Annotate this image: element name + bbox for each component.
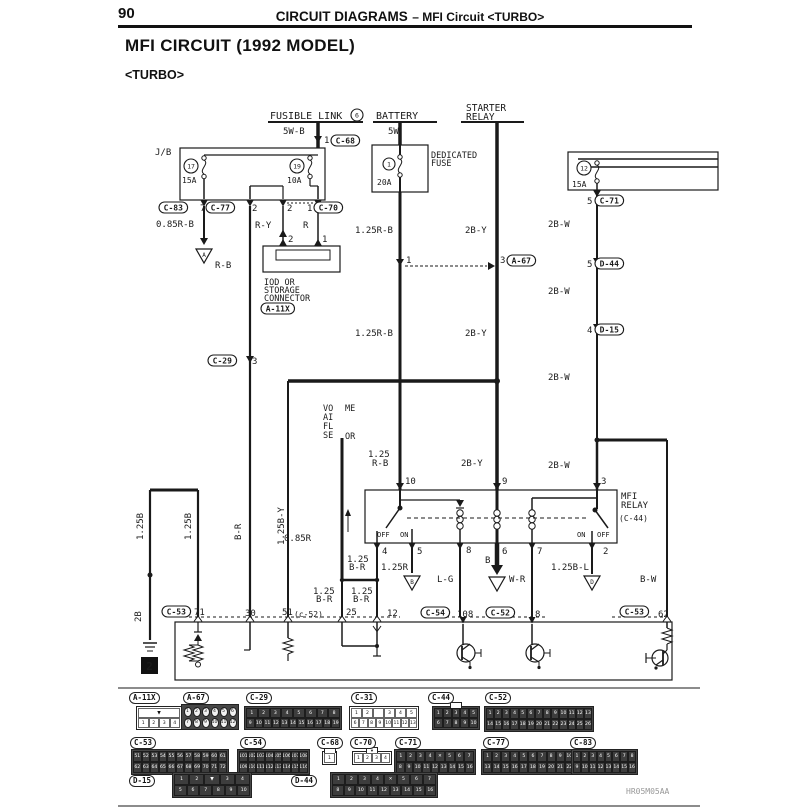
pin-cell: 2 <box>363 753 372 763</box>
pin-cell: 6 <box>434 718 443 728</box>
pin-cell: 1 <box>332 774 345 785</box>
pin-cell: 3 <box>416 751 426 762</box>
pin-cell: 5 <box>406 708 417 718</box>
pin-cell: 2 <box>492 751 501 762</box>
pin-cell: 11 <box>568 708 576 719</box>
pin-cell: 18 <box>528 762 537 773</box>
pin-cell: 1 <box>483 751 492 762</box>
pin-cell: 8 <box>368 718 376 728</box>
pin-cell: 3 <box>220 774 235 785</box>
pin-cell: 7 <box>443 718 452 728</box>
pin-cell: 6 <box>455 751 465 762</box>
pin-cell: 20 <box>535 719 543 730</box>
pin-cell: 16 <box>502 719 510 730</box>
connector-pinout-a-67: 123456789101112 <box>181 704 239 730</box>
pin-cell: 102 <box>248 751 257 762</box>
pin-cell: 4 <box>510 708 518 719</box>
connector-pinout-c-68: 1 <box>322 751 337 765</box>
pin-cell: 4 <box>371 774 384 785</box>
pin-cell: 15 <box>494 719 502 730</box>
pin-cell: 5 <box>469 708 478 718</box>
pin-cell: 116 <box>299 762 308 773</box>
pin-cell: 7 <box>620 751 628 762</box>
pin-cell: 9 <box>376 718 384 728</box>
pin-cell: 2 <box>581 751 589 762</box>
pin-cell: 9 <box>344 785 356 796</box>
pin-cell: 1 <box>354 753 363 763</box>
latch-icon <box>450 702 462 708</box>
panel-label-c-68: C-68 <box>317 737 343 749</box>
panel-label-c-53: C-53 <box>130 737 156 749</box>
pin-cell: 1 <box>351 708 362 718</box>
pin-cell: 16 <box>628 762 636 773</box>
pin-cell: 6 <box>305 708 317 718</box>
pin-cell: 1 <box>486 708 494 719</box>
pin-cell: 10 <box>355 785 367 796</box>
pin-cell: 18 <box>323 718 332 728</box>
pin-cell: 12 <box>597 762 605 773</box>
pin-cell: 9 <box>556 751 565 762</box>
pin-cell: 4 <box>460 708 469 718</box>
pin-cell: 62 <box>133 762 142 773</box>
connector-pinout-d-15: 12▼345678910 <box>172 772 252 798</box>
pin-cell: 4 <box>170 718 181 728</box>
pin-cell: 13 <box>409 718 417 728</box>
pin-cell: 10 <box>211 718 219 728</box>
pin-cell: 8 <box>193 718 201 728</box>
pin-cell: 19 <box>527 719 535 730</box>
pin-cell: 3 <box>384 708 395 718</box>
manual-page: { "page": { "number": "90", "header_left… <box>0 0 810 810</box>
pin-cell: 2 <box>193 707 201 717</box>
panel-label-c-77: C-77 <box>483 737 509 749</box>
pin-cell: 2 <box>345 774 358 785</box>
pin-cell: 14 <box>486 719 494 730</box>
pin-cell: 3 <box>270 708 282 718</box>
pin-cell: 108 <box>299 751 308 762</box>
pin-cell: 6 <box>187 785 200 796</box>
pin-cell: 3 <box>372 753 381 763</box>
pin-cell: 8 <box>547 751 556 762</box>
pin-cell: 13 <box>584 708 592 719</box>
pin-cell: 7 <box>184 718 192 728</box>
panel-label-c-71: C-71 <box>395 737 421 749</box>
pin-cell: 6 <box>410 774 423 785</box>
pin-cell: 7 <box>535 708 543 719</box>
pin-cell <box>373 708 384 718</box>
pin-cell: 15 <box>457 762 466 773</box>
pin-cell: 9 <box>573 762 581 773</box>
pin-cell: 9 <box>246 718 255 728</box>
panel-label-c-52: C-52 <box>485 692 511 704</box>
panel-label-c-83: C-83 <box>570 737 596 749</box>
pin-cell: 51 <box>133 751 142 762</box>
pin-cell: 9 <box>225 785 238 796</box>
pin-cell: 12 <box>229 718 237 728</box>
pin-cell: 10 <box>559 708 567 719</box>
pin-cell: 1 <box>184 707 192 717</box>
pin-cell: 14 <box>289 718 298 728</box>
pin-cell: ✕ <box>435 751 445 762</box>
pin-cell: 5 <box>519 751 528 762</box>
panel-label-c-54: C-54 <box>240 737 266 749</box>
panel-label-a-67: A-67 <box>183 692 209 704</box>
pin-cell: 2 <box>494 708 502 719</box>
watermark: HR05M05AA <box>626 787 669 796</box>
pin-cell: 16 <box>465 762 474 773</box>
pin-cell: 13 <box>605 762 613 773</box>
pin-cell: 5 <box>220 707 228 717</box>
pin-cell: 5 <box>174 785 187 796</box>
pin-cell: 3 <box>358 774 371 785</box>
connector-pinout-c-29: 12345678910111213141516171819 <box>244 706 342 730</box>
pin-cell: 8 <box>543 708 551 719</box>
pin-cell: 13 <box>390 785 402 796</box>
pin-cell: 16 <box>306 718 315 728</box>
pin-cell: 24 <box>568 719 576 730</box>
pin-cell: 7 <box>359 718 367 728</box>
pin-cell: 9 <box>551 708 559 719</box>
pin-cell: 16 <box>510 762 519 773</box>
pin-cell: 3 <box>502 708 510 719</box>
pin-cell: 8 <box>212 785 225 796</box>
pin-cell: 7 <box>537 751 546 762</box>
pin-cell: 57 <box>184 751 193 762</box>
pin-cell: 55 <box>167 751 176 762</box>
pin-cell: 106 <box>282 751 291 762</box>
pin-cell: 21 <box>556 762 565 773</box>
pin-cell: 65 <box>159 762 168 773</box>
pin-cell: 7 <box>317 708 329 718</box>
pin-cell: 5 <box>445 751 455 762</box>
pin-cell: 54 <box>159 751 168 762</box>
pin-cell: 3 <box>589 751 597 762</box>
pin-cell: 17 <box>314 718 323 728</box>
pin-cell: 1 <box>324 753 335 763</box>
pin-cell: 113 <box>274 762 283 773</box>
pin-cell: 13 <box>280 718 289 728</box>
pin-cell: 4 <box>395 708 406 718</box>
pin-cell: 115 <box>291 762 300 773</box>
pin-cell: 15 <box>297 718 306 728</box>
pin-cell: 19 <box>331 718 340 728</box>
pin-cell: 12 <box>576 708 584 719</box>
pin-cell: 10 <box>469 718 478 728</box>
pin-cell: 11 <box>392 718 400 728</box>
pin-cell: 8 <box>628 751 636 762</box>
pin-cell: 9 <box>202 718 210 728</box>
pin-cell: ▼ <box>138 708 180 718</box>
pin-cell: 7 <box>464 751 474 762</box>
panel-label-c-31: C-31 <box>351 692 377 704</box>
pin-cell: 19 <box>537 762 546 773</box>
pin-cell: 59 <box>201 751 210 762</box>
pin-cell: 2 <box>149 718 160 728</box>
pin-cell: 11 <box>263 718 272 728</box>
pin-cell: 4 <box>510 751 519 762</box>
pin-cell: 3 <box>501 751 510 762</box>
pin-cell: 5 <box>293 708 305 718</box>
pin-cell: 8 <box>332 785 344 796</box>
pin-cell: 4 <box>235 774 250 785</box>
pin-cell: 9 <box>460 718 469 728</box>
pin-cell: 1 <box>434 708 443 718</box>
pin-cell: 15 <box>501 762 510 773</box>
panel-label-c-44: C-44 <box>428 692 454 704</box>
pin-cell: 4 <box>281 708 293 718</box>
pin-cell: 25 <box>576 719 584 730</box>
pin-cell: 1 <box>138 718 149 728</box>
pin-cell: 1 <box>573 751 581 762</box>
pin-cell: 1 <box>174 774 189 785</box>
pin-cell: 104 <box>265 751 274 762</box>
pin-cell: 2 <box>443 708 452 718</box>
pin-cell: 4 <box>211 707 219 717</box>
pin-cell: 63 <box>142 762 151 773</box>
pin-cell: 3 <box>159 718 170 728</box>
connector-panel: A-11X▼1234A-67123456789101112C-291234567… <box>0 0 810 810</box>
pin-cell: 13 <box>483 762 492 773</box>
pin-cell: 3 <box>452 708 461 718</box>
connector-pinout-c-52: 1234567891011121314151617181920212223242… <box>484 706 594 732</box>
pin-cell: 2 <box>362 708 373 718</box>
panel-label-a-11x: A-11X <box>129 692 160 704</box>
pin-cell: 1 <box>396 751 406 762</box>
pin-cell: 6 <box>527 708 535 719</box>
pin-cell: 14 <box>612 762 620 773</box>
pin-cell: 14 <box>448 762 457 773</box>
pin-cell: 2 <box>189 774 204 785</box>
pin-cell: ▼ <box>204 774 219 785</box>
pin-cell: 111 <box>256 762 265 773</box>
connector-pinout-c-70: ▼1234 <box>352 751 392 765</box>
pin-cell: 14 <box>401 785 413 796</box>
pin-cell: 7 <box>423 774 436 785</box>
pin-cell: 7 <box>199 785 212 796</box>
connector-pinout-c-31: 12345678910111213 <box>349 706 419 730</box>
pin-cell: 2 <box>406 751 416 762</box>
pin-cell: 10 <box>581 762 589 773</box>
panel-label-c-70: C-70 <box>350 737 376 749</box>
pin-cell: 11 <box>220 718 228 728</box>
pin-cell: 6 <box>351 718 359 728</box>
pin-cell: 4 <box>425 751 435 762</box>
pin-cell: 17 <box>519 762 528 773</box>
pin-cell: 15 <box>620 762 628 773</box>
pin-cell: 5 <box>605 751 613 762</box>
pin-cell: 17 <box>510 719 518 730</box>
pin-cell: 11 <box>367 785 379 796</box>
pin-cell: 10 <box>237 785 250 796</box>
pin-cell: 18 <box>519 719 527 730</box>
pin-cell: 14 <box>492 762 501 773</box>
pin-cell: 10 <box>384 718 392 728</box>
panel-label-d-15: D-15 <box>129 775 155 787</box>
pin-cell: 53 <box>150 751 159 762</box>
connector-pinout-c-83: 12345678910111213141516 <box>571 749 638 775</box>
connector-pinout-c-44: 12345678910 <box>432 706 480 730</box>
pin-cell: 52 <box>142 751 151 762</box>
panel-label-c-29: C-29 <box>246 692 272 704</box>
pin-cell: 15 <box>413 785 425 796</box>
pin-cell: 103 <box>256 751 265 762</box>
pin-cell: 12 <box>272 718 281 728</box>
pin-cell: 8 <box>328 708 340 718</box>
pin-cell: 26 <box>584 719 592 730</box>
pin-cell: 101 <box>239 751 248 762</box>
pin-cell: 6 <box>229 707 237 717</box>
pin-cell: 58 <box>193 751 202 762</box>
connector-pinout-a-11x: ▼1234 <box>136 706 182 730</box>
pin-cell: 5 <box>397 774 410 785</box>
pin-cell: 16 <box>425 785 437 796</box>
pin-cell: 61 <box>218 751 227 762</box>
pin-cell: 2 <box>258 708 270 718</box>
pin-cell: 10 <box>255 718 264 728</box>
pin-cell: 6 <box>528 751 537 762</box>
pin-cell: 5 <box>519 708 527 719</box>
pin-cell: 22 <box>551 719 559 730</box>
pin-cell: 13 <box>439 762 448 773</box>
pin-cell: 112 <box>265 762 274 773</box>
pin-cell: 56 <box>176 751 185 762</box>
pin-cell: 64 <box>150 762 159 773</box>
pin-cell: 107 <box>291 751 300 762</box>
pin-cell: 21 <box>543 719 551 730</box>
pin-cell: 12 <box>378 785 390 796</box>
pin-cell: 60 <box>210 751 219 762</box>
pin-cell: ✕ <box>384 774 397 785</box>
pin-cell: 23 <box>559 719 567 730</box>
panel-label-d-44: D-44 <box>291 775 317 787</box>
pin-cell: 1 <box>246 708 258 718</box>
pin-cell: 4 <box>597 751 605 762</box>
pin-cell: 6 <box>612 751 620 762</box>
pin-cell: 20 <box>547 762 556 773</box>
connector-pinout-d-44: 1234✕5678910111213141516 <box>330 772 438 798</box>
pin-cell: 4 <box>381 753 390 763</box>
pin-cell: 114 <box>282 762 291 773</box>
pin-cell: 12 <box>401 718 409 728</box>
pin-cell: 3 <box>202 707 210 717</box>
pin-cell: 11 <box>589 762 597 773</box>
pin-cell: 105 <box>274 751 283 762</box>
pin-cell: 8 <box>452 718 461 728</box>
